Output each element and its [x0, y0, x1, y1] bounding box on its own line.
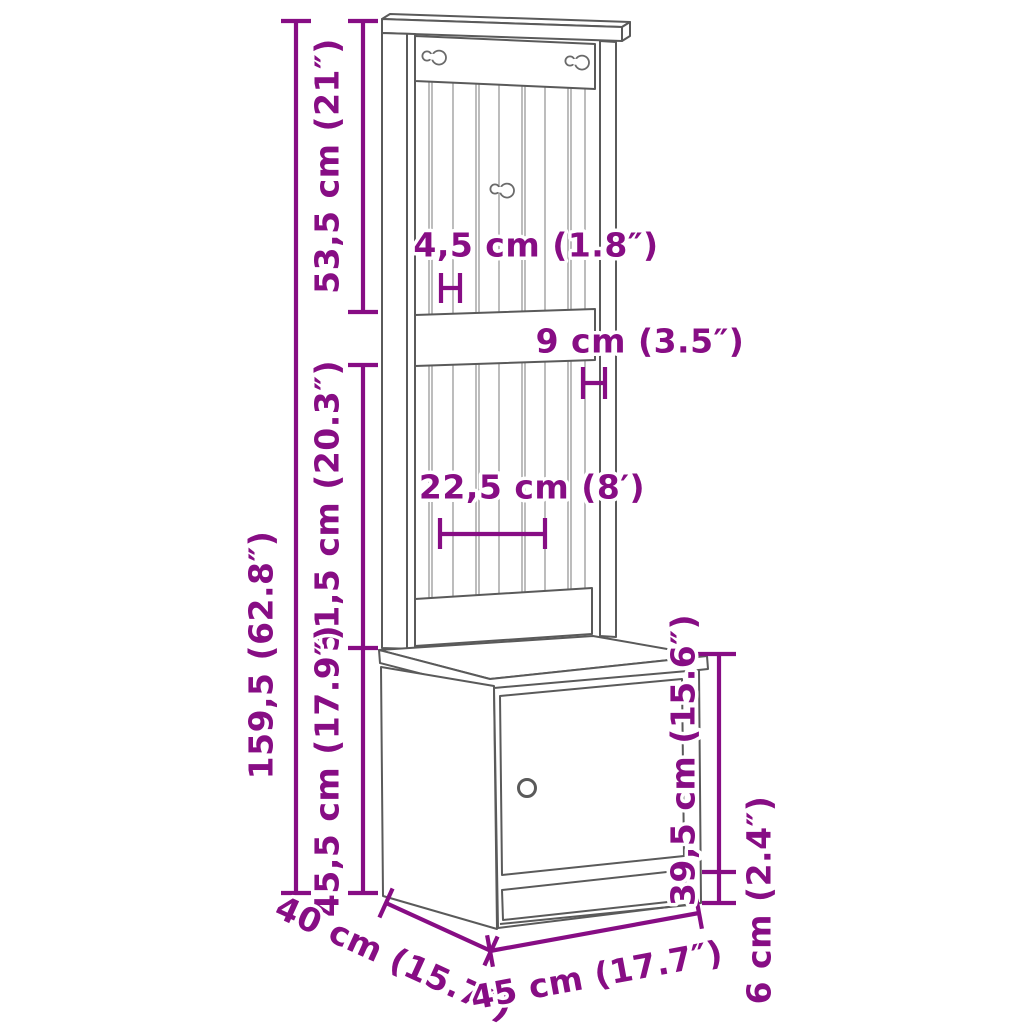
- dim-label-slat-spacing: 4,5 cm (1.8″): [413, 226, 658, 265]
- cabinet-side-panel: [381, 667, 497, 929]
- dim-label-middle-section-height: 51,5 cm (20.3″): [308, 360, 347, 652]
- dim-label-door-height: 39,5 cm (15.6″): [664, 614, 703, 906]
- dim-line-top-section: [348, 21, 378, 312]
- dim-line-cabinet-height: [348, 648, 378, 893]
- cabinet-door: [500, 679, 684, 875]
- dim-label-top-section-height: 53,5 cm (21″): [308, 38, 347, 294]
- coat-hook-icon: [490, 184, 514, 198]
- left-post: [382, 33, 415, 649]
- dim-line-total-height: [281, 21, 311, 893]
- dim-line-middle-section: [348, 365, 378, 648]
- dim-label-width: 45 cm (17.7″): [467, 933, 726, 1018]
- dim-line-slat-span: [440, 518, 545, 549]
- dim-label-total-height: 159,5 (62.8″): [242, 531, 281, 780]
- door-knob: [519, 780, 536, 797]
- diagram-canvas: 159,5 (62.8″) 53,5 cm (21″) 51,5 cm (20.…: [0, 0, 1024, 1024]
- dim-line-plinth-height: [702, 872, 736, 903]
- furniture-dimension-diagram: 159,5 (62.8″) 53,5 cm (21″) 51,5 cm (20.…: [0, 0, 1024, 1024]
- dim-label-plinth-height: 6 cm (2.4″): [740, 796, 779, 1005]
- dim-label-slat-span: 22,5 cm (8′): [419, 468, 645, 507]
- dim-label-cabinet-height: 45,5 cm (17.9″): [308, 625, 347, 917]
- dim-marker-slat-spacing: [441, 273, 460, 303]
- dim-label-rail-height: 9 cm (3.5″): [536, 322, 745, 361]
- cabinet-base: [381, 667, 701, 929]
